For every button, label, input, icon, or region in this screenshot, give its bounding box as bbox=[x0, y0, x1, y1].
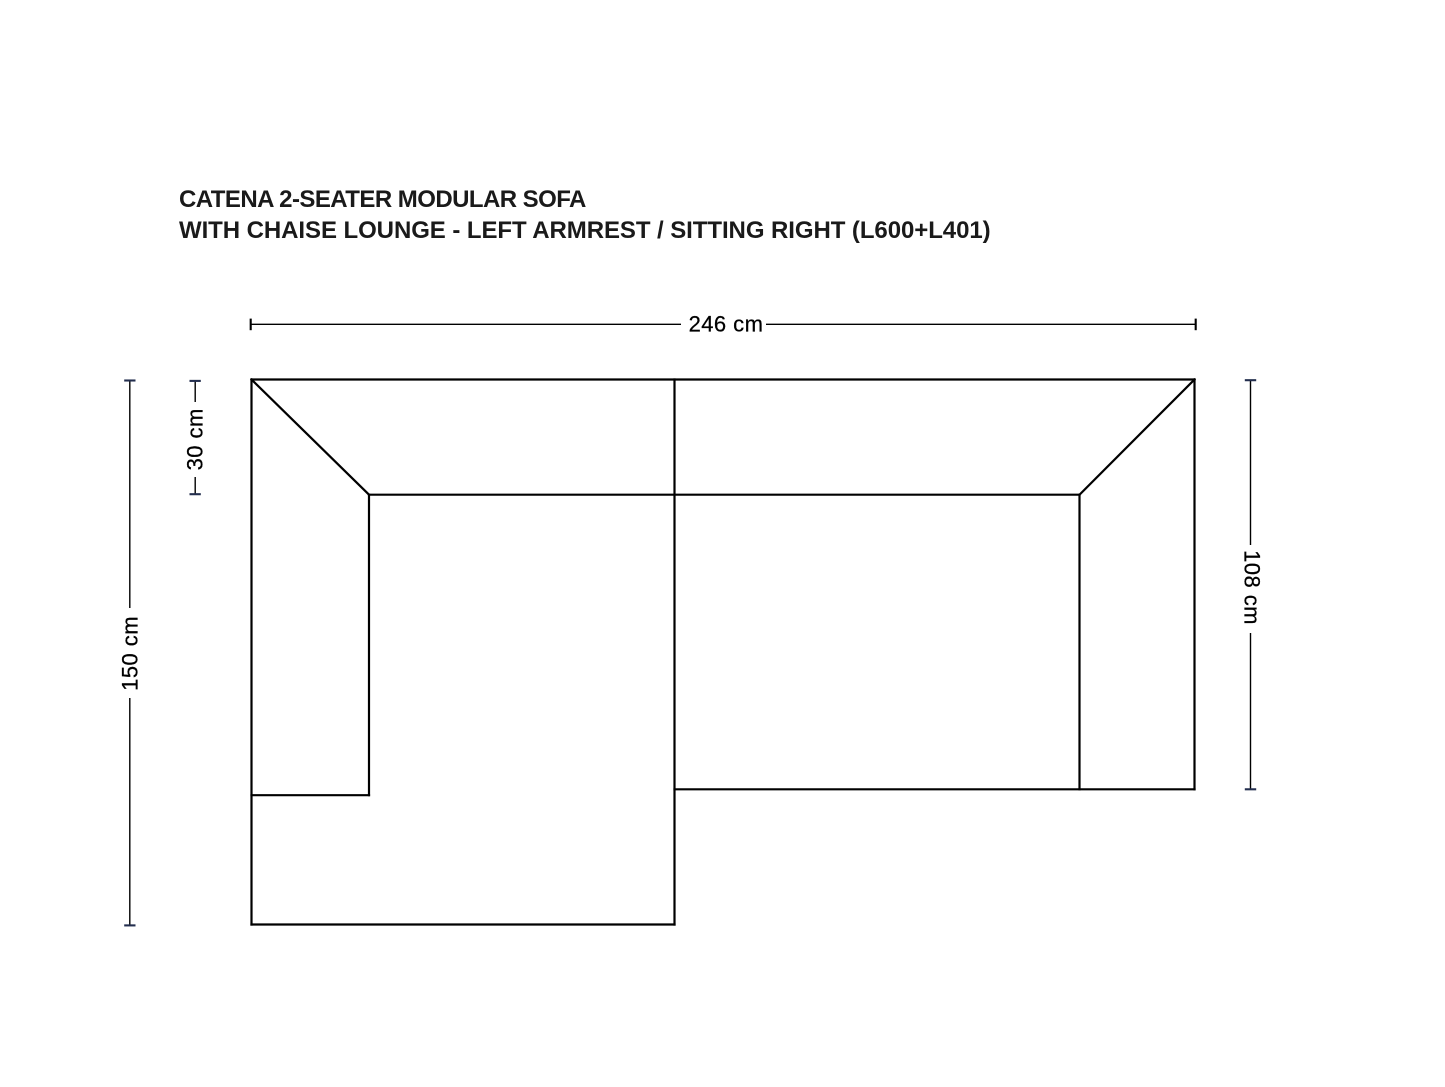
svg-text:108 cm: 108 cm bbox=[1239, 550, 1264, 625]
svg-text:246 cm: 246 cm bbox=[689, 312, 764, 337]
svg-text:150 cm: 150 cm bbox=[117, 616, 142, 691]
svg-text:30 cm: 30 cm bbox=[182, 408, 207, 470]
